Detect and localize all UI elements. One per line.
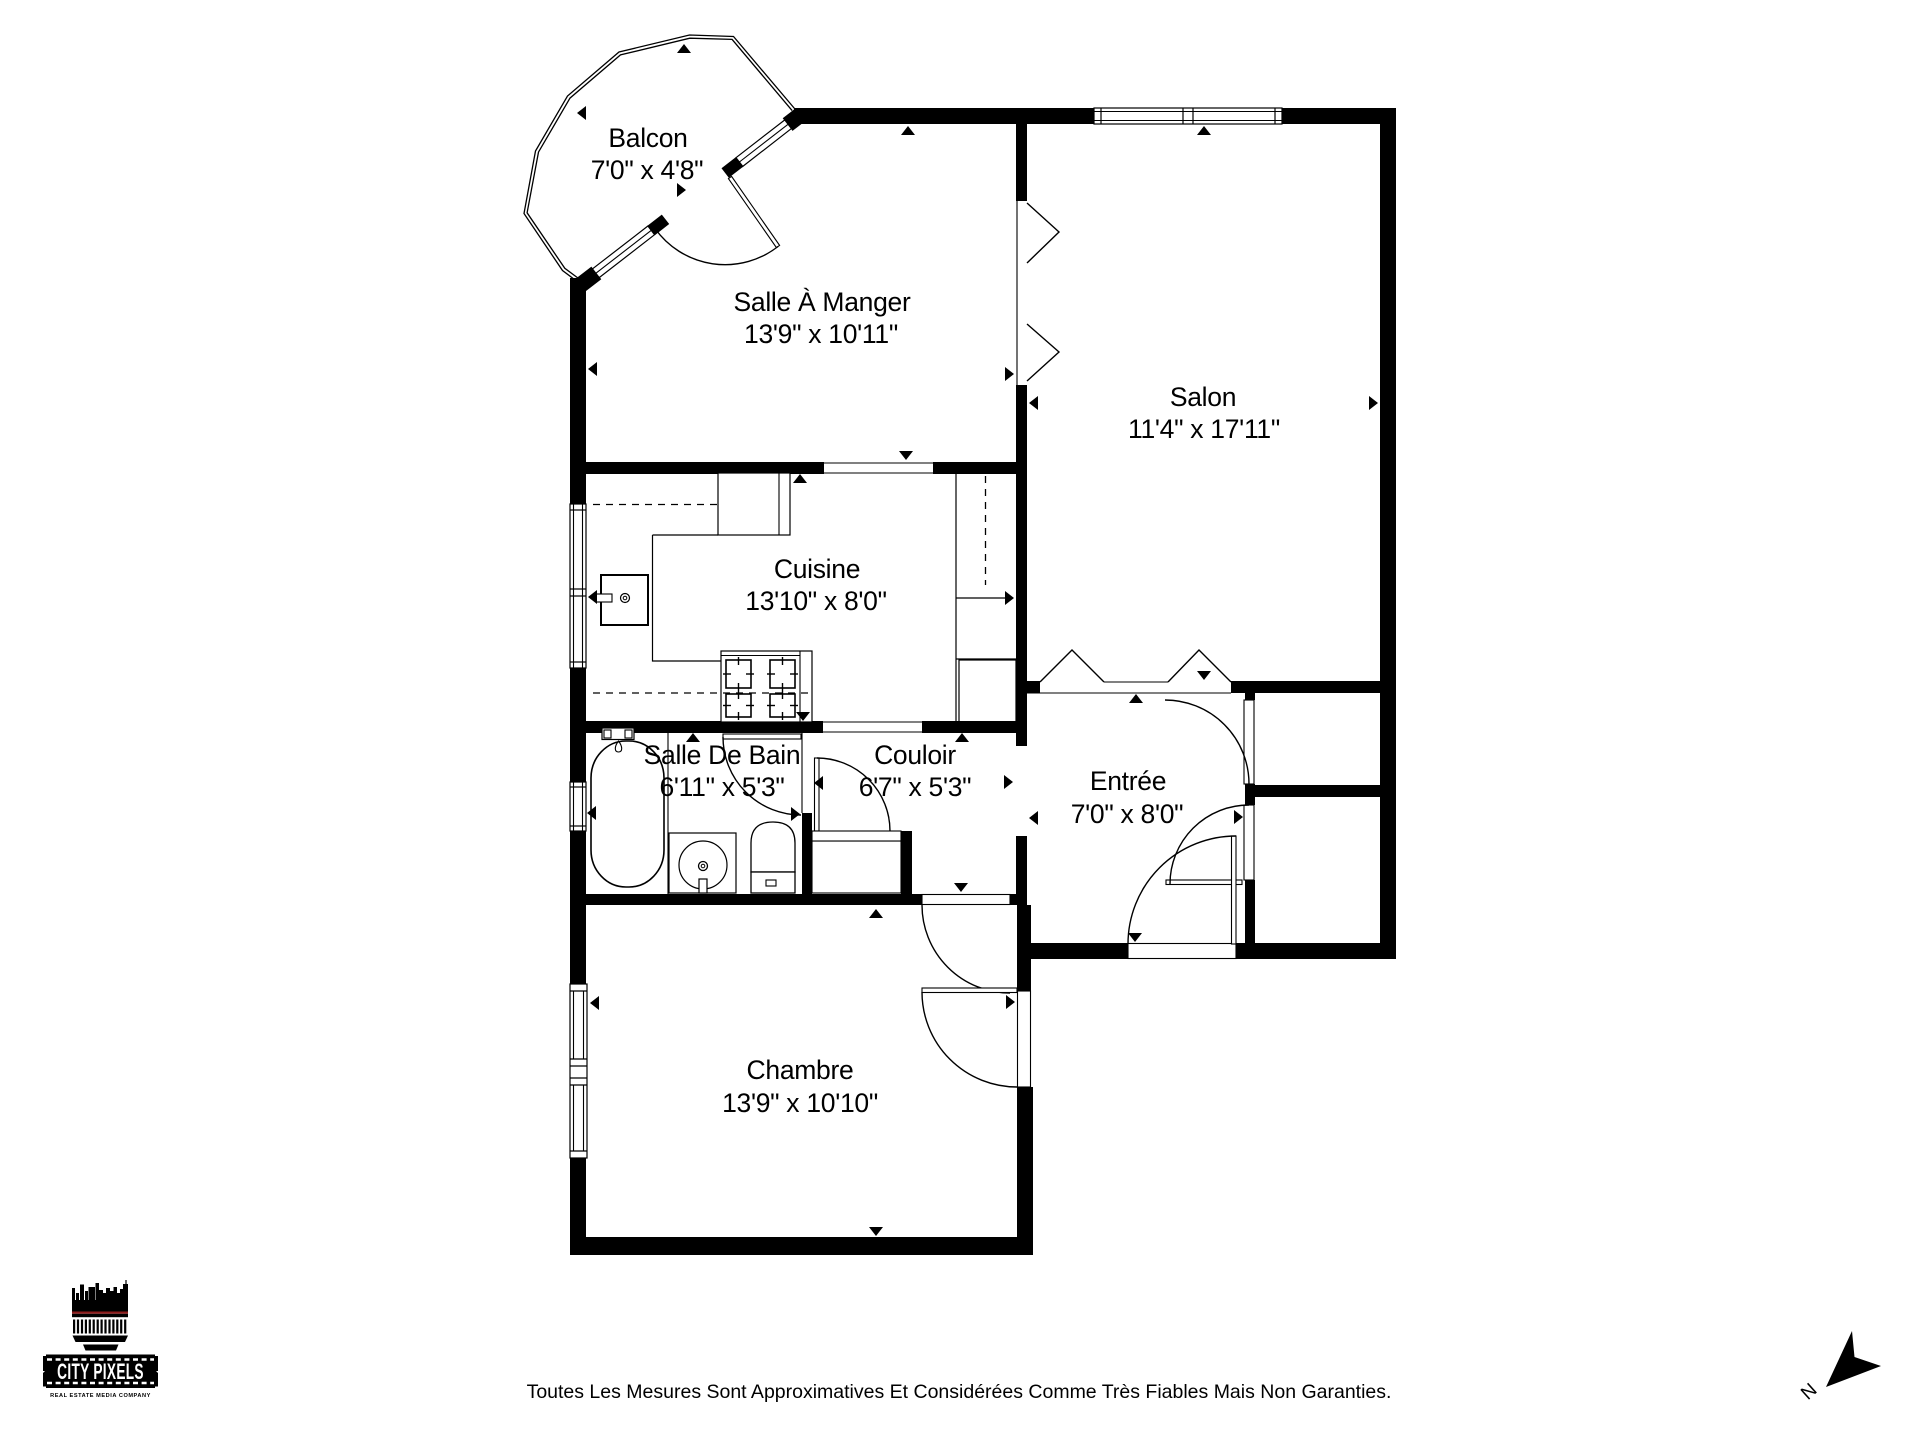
svg-text:13'9" x 10'10": 13'9" x 10'10" xyxy=(722,1088,878,1118)
svg-text:6'11" x 5'3": 6'11" x 5'3" xyxy=(659,772,784,802)
svg-text:7'0" x 8'0": 7'0" x 8'0" xyxy=(1071,799,1184,829)
svg-text:REAL ESTATE MEDIA COMPANY: REAL ESTATE MEDIA COMPANY xyxy=(50,1393,151,1399)
svg-text:7'0" x 4'8": 7'0" x 4'8" xyxy=(591,155,704,185)
svg-text:13'9" x 10'11": 13'9" x 10'11" xyxy=(744,319,898,349)
svg-text:Chambre: Chambre xyxy=(747,1055,854,1085)
svg-text:11'4" x 17'11": 11'4" x 17'11" xyxy=(1128,414,1280,444)
svg-text:Entrée: Entrée xyxy=(1090,766,1166,796)
svg-text:Salon: Salon xyxy=(1170,382,1236,412)
svg-text:Salle À Manger: Salle À Manger xyxy=(734,287,911,317)
svg-text:Salle De Bain: Salle De Bain xyxy=(644,740,801,770)
svg-text:Couloir: Couloir xyxy=(874,740,956,770)
svg-text:6'7" x 5'3": 6'7" x 5'3" xyxy=(859,772,972,802)
svg-text:Cuisine: Cuisine xyxy=(774,554,860,584)
svg-text:Balcon: Balcon xyxy=(608,123,687,153)
svg-text:CITY PIXELS: CITY PIXELS xyxy=(57,1359,144,1384)
svg-text:13'10" x 8'0": 13'10" x 8'0" xyxy=(745,586,886,616)
svg-text:Toutes Les Mesures Sont Approx: Toutes Les Mesures Sont Approximatives E… xyxy=(527,1381,1392,1403)
